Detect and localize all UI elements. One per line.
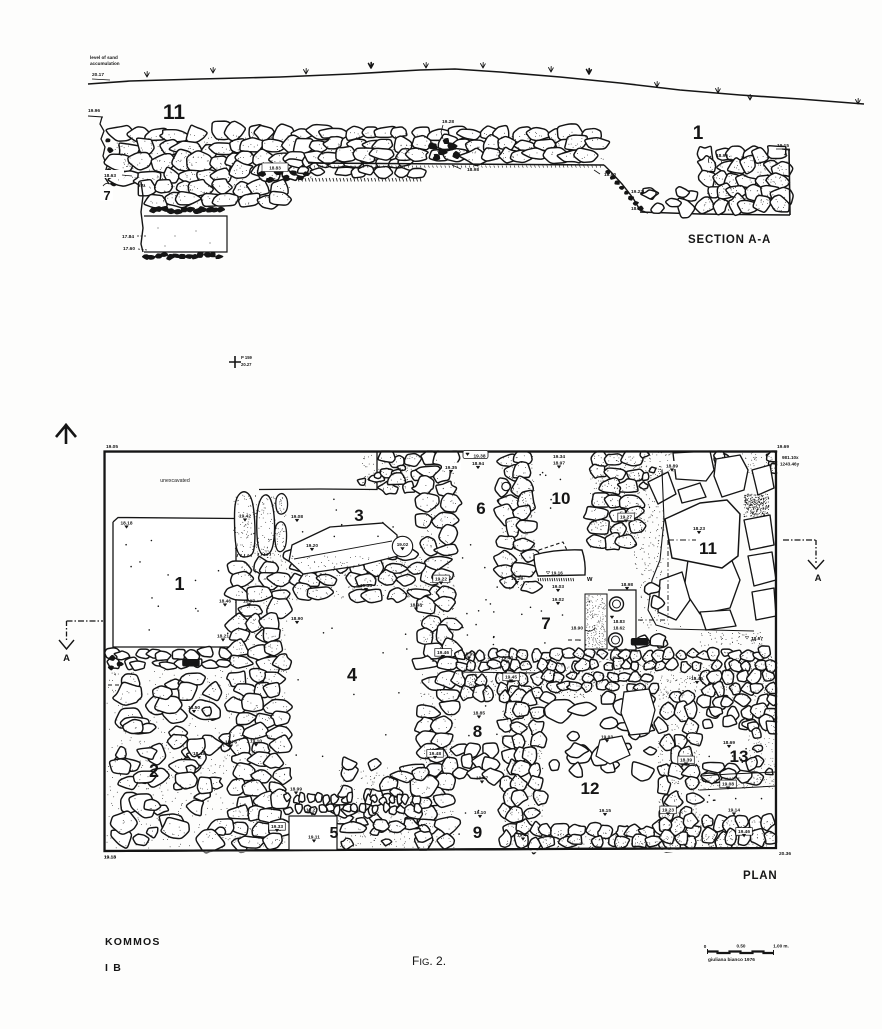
svg-text:11: 11 (163, 101, 186, 124)
svg-text:20.36: 20.36 (779, 851, 791, 857)
svg-text:1: 1 (693, 123, 704, 144)
svg-text:2: 2 (149, 761, 159, 781)
svg-text:18.83: 18.83 (269, 166, 281, 171)
svg-text:+'.: +'. (784, 152, 788, 157)
svg-text:19.02: 19.02 (397, 542, 409, 547)
svg-text:4: 4 (347, 665, 357, 685)
svg-text:19.15: 19.15 (777, 143, 789, 149)
svg-text:SECTION A-A: SECTION A-A (688, 234, 771, 246)
svg-text:19.28: 19.28 (442, 119, 454, 125)
svg-text:20.27: 20.27 (241, 362, 252, 367)
svg-text:1243.46y: 1243.46y (780, 462, 800, 467)
svg-text:accumulation: accumulation (90, 61, 120, 66)
svg-text:0.50: 0.50 (737, 944, 746, 949)
svg-text:17.60: 17.60 (123, 246, 135, 252)
svg-text:A: A (63, 653, 70, 664)
svg-text:18.43: 18.43 (634, 640, 646, 645)
svg-text:20.17: 20.17 (92, 72, 104, 78)
svg-text:19.18: 19.18 (104, 855, 116, 861)
svg-text:19.16: 19.16 (551, 571, 563, 576)
svg-text:18.96: 18.96 (716, 153, 728, 159)
svg-text:17.84: 17.84 (122, 234, 134, 240)
svg-text:A: A (815, 573, 822, 584)
svg-text:10: 10 (552, 489, 571, 508)
svg-text:18.98: 18.98 (467, 167, 479, 173)
svg-text:I B: I B (105, 962, 122, 974)
svg-text:3: 3 (354, 506, 363, 525)
svg-text:981.10x: 981.10x (782, 455, 799, 460)
svg-text:18.67: 18.67 (751, 636, 763, 642)
svg-text:19.05: 19.05 (106, 444, 118, 450)
svg-text:P 159: P 159 (241, 355, 253, 360)
svg-text:5: 5 (330, 825, 339, 842)
svg-text:PLAN: PLAN (743, 870, 778, 882)
svg-text:19.96: 19.96 (88, 108, 100, 114)
svg-text:7: 7 (103, 188, 110, 203)
svg-text:1: 1 (174, 574, 184, 594)
svg-text:1.00 m.: 1.00 m. (773, 944, 789, 949)
svg-text:18.90: 18.90 (571, 626, 583, 632)
svg-text:7: 7 (541, 614, 550, 633)
svg-text:0: 0 (704, 944, 707, 949)
svg-text:w: w (586, 576, 593, 583)
svg-text:9: 9 (473, 823, 482, 842)
svg-text:18.90: 18.90 (604, 172, 616, 178)
svg-text:19.38: 19.38 (473, 453, 485, 459)
svg-text:11: 11 (699, 539, 717, 558)
svg-text:level of sand: level of sand (90, 55, 118, 60)
svg-text:19.34: 19.34 (553, 454, 565, 460)
svg-text:12: 12 (581, 779, 600, 798)
svg-text:18.96: 18.96 (185, 661, 197, 666)
svg-text:18.21: 18.21 (631, 206, 643, 212)
svg-text:13: 13 (730, 747, 749, 766)
svg-text:18.63: 18.63 (104, 173, 116, 179)
svg-text:FIG. 2.: FIG. 2. (412, 954, 446, 968)
svg-text:giuliana bianco 1976: giuliana bianco 1976 (708, 957, 755, 963)
svg-text:KOMMOS: KOMMOS (105, 936, 161, 948)
svg-text:18.62: 18.62 (613, 626, 625, 631)
svg-text:6: 6 (476, 499, 485, 518)
svg-text:unexcavated: unexcavated (160, 478, 190, 484)
svg-text:18.83: 18.83 (613, 619, 625, 624)
svg-text:19.69: 19.69 (777, 444, 789, 450)
svg-text:8: 8 (473, 722, 482, 741)
